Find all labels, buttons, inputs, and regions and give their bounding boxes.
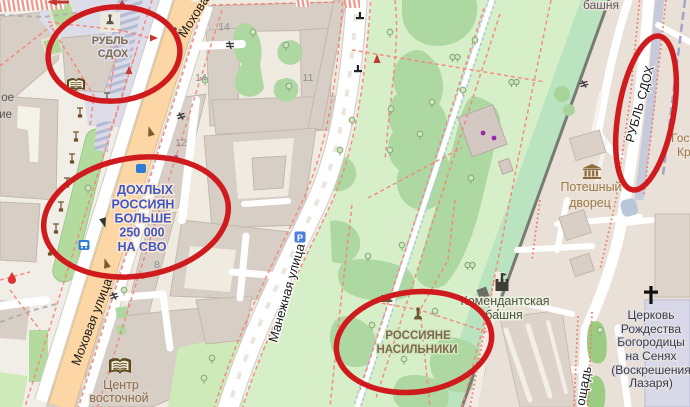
- svg-text:восточной: восточной: [89, 391, 148, 405]
- svg-text:НА СВО: НА СВО: [118, 240, 167, 254]
- svg-text:Кр: Кр: [677, 145, 690, 159]
- svg-text:башня: башня: [485, 308, 523, 322]
- svg-text:Рождества: Рождества: [621, 322, 681, 336]
- svg-text:11: 11: [303, 72, 314, 84]
- svg-text:РОССИЯНЕ: РОССИЯНЕ: [385, 330, 451, 342]
- svg-text:Богородицы: Богородицы: [617, 335, 685, 349]
- svg-text:ДОХЛЫХ: ДОХЛЫХ: [117, 183, 173, 197]
- svg-text:ие: ие: [0, 109, 12, 121]
- svg-text:РОССИЯН: РОССИЯН: [112, 198, 175, 212]
- svg-text:РУБЛЬ: РУБЛЬ: [92, 35, 129, 47]
- svg-text:Церковь: Церковь: [628, 308, 675, 322]
- svg-text:БОЛЬШЕ: БОЛЬШЕ: [114, 212, 171, 226]
- svg-text:12: 12: [175, 137, 187, 149]
- svg-text:14: 14: [195, 72, 207, 84]
- svg-text:Потешный: Потешный: [560, 180, 621, 194]
- svg-text:8: 8: [154, 259, 160, 271]
- svg-text:14: 14: [218, 21, 230, 33]
- svg-text:Центр: Центр: [103, 378, 139, 392]
- svg-text:НАСИЛЬНИКИ: НАСИЛЬНИКИ: [376, 344, 457, 356]
- svg-text:башня: башня: [583, 0, 619, 12]
- svg-text:Лазаря): Лазаря): [629, 376, 673, 390]
- svg-text:дворец: дворец: [569, 196, 611, 210]
- svg-text:250 000: 250 000: [119, 226, 164, 240]
- svg-text:P: P: [297, 233, 303, 243]
- svg-text:СДОХ: СДОХ: [98, 48, 129, 60]
- svg-text:(Воскрешения: (Воскрешения: [611, 363, 690, 377]
- svg-text:Госу: Госу: [671, 131, 690, 145]
- svg-text:ое: ое: [1, 92, 14, 104]
- svg-text:на Сенях: на Сенях: [625, 349, 676, 363]
